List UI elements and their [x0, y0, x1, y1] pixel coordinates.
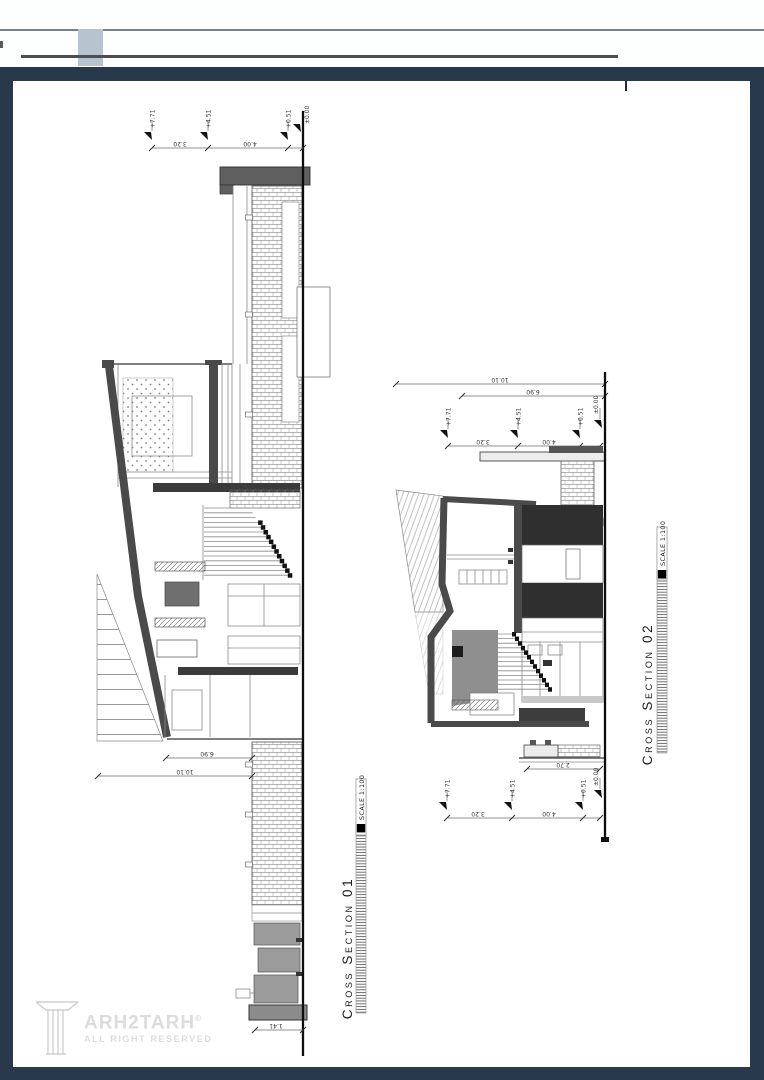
- dim-label: 3.20: [476, 438, 490, 445]
- interior-wall: [514, 503, 522, 633]
- watermark-brand: ARH2TARH©: [84, 1010, 212, 1032]
- scale-bar-01: SCALE 1:100: [356, 775, 366, 1013]
- watermark-tagline: ALL RIGHT RESERVED: [84, 1034, 212, 1044]
- level-label: +4.51: [516, 407, 523, 426]
- roof-slab: [480, 452, 605, 461]
- dark-slab-band: [519, 708, 585, 721]
- stepped-block: [254, 975, 298, 1003]
- sections-drawing: +7.71 +4.51 +0.51 ±0.00 3.20 4.00 6.90 1…: [0, 0, 764, 1080]
- dim-label: 1.41: [269, 1022, 283, 1029]
- floor-strip: [522, 696, 603, 703]
- dim-label: 3.20: [173, 140, 187, 147]
- level-label: ±0.00: [593, 395, 600, 414]
- section-01-title: Cross Section 01: [340, 868, 356, 1028]
- scale-bar-square: [658, 570, 666, 578]
- dim-label: 2.70: [556, 761, 570, 768]
- section-02-annotations-top: 10.10 6.90 +7.71 +4.51 +0.51 ±0.00 3.20 …: [393, 376, 608, 449]
- level-label: +0.51: [578, 407, 585, 426]
- level-label: +7.71: [446, 407, 453, 426]
- cross-section-02-drawing: 10.10 6.90 +7.71 +4.51 +0.51 ±0.00 3.20 …: [393, 372, 667, 842]
- level-label: +4.51: [206, 109, 213, 128]
- section-02-title: Cross Section 02: [640, 614, 656, 774]
- footing-slab: [249, 1005, 307, 1020]
- window-slot: [282, 336, 299, 422]
- dim-label: 6.90: [526, 388, 540, 395]
- brick-wall-band-lower: [252, 742, 302, 905]
- scale-bar-square: [357, 824, 365, 832]
- dim-label: 4.00: [243, 140, 257, 147]
- section-02-annotations-bottom: 2.70 +7.71 +4.51 +0.51 ±0.00 3.20 4.00: [439, 761, 603, 821]
- level-label: +4.51: [510, 779, 517, 798]
- roof-wall: [443, 499, 536, 504]
- dim-label: 10.10: [491, 376, 508, 383]
- drawing-sheet: +7.71 +4.51 +0.51 ±0.00 3.20 4.00 6.90 1…: [0, 0, 764, 1080]
- level-label: +7.71: [150, 109, 157, 128]
- furniture-block: [165, 582, 199, 606]
- dim-label: 4.00: [542, 438, 556, 445]
- level-label: ±0.00: [304, 105, 311, 124]
- dim-label: 4.00: [542, 810, 556, 817]
- watermark: ARH2TARH© ALL RIGHT RESERVED: [34, 996, 212, 1058]
- level-label: +0.51: [581, 779, 588, 798]
- scale-bar-02: SCALE 1:100: [657, 521, 667, 753]
- copyright-symbol: ©: [195, 1014, 202, 1023]
- stepped-block: [258, 948, 300, 972]
- level-label: ±0.00: [593, 767, 600, 786]
- ceiling-dotted-panel: [123, 378, 173, 472]
- roof-slab: [220, 167, 310, 185]
- interior-wall: [209, 362, 218, 488]
- scale-label: SCALE 1:100: [358, 775, 366, 820]
- dim-label: 10.10: [176, 768, 193, 775]
- dark-slab-band: [522, 505, 603, 545]
- column-logo-icon: [34, 996, 80, 1058]
- cross-section-01-drawing: +7.71 +4.51 +0.51 ±0.00 3.20 4.00 6.90 1…: [95, 105, 366, 1056]
- staircase: [203, 505, 292, 580]
- dark-slab-band: [522, 583, 603, 618]
- sloped-roof-hatch: [396, 490, 443, 612]
- window: [566, 549, 580, 579]
- dim-label: 6.90: [200, 750, 214, 757]
- level-label: +0.51: [286, 109, 293, 128]
- scale-label: SCALE 1:100: [659, 521, 667, 566]
- stepped-block: [254, 923, 300, 945]
- gray-floor: [452, 630, 498, 693]
- level-label: +7.71: [445, 779, 452, 798]
- floor-slab: [178, 667, 298, 675]
- window-slot: [282, 202, 299, 318]
- dim-label: 3.20: [471, 810, 485, 817]
